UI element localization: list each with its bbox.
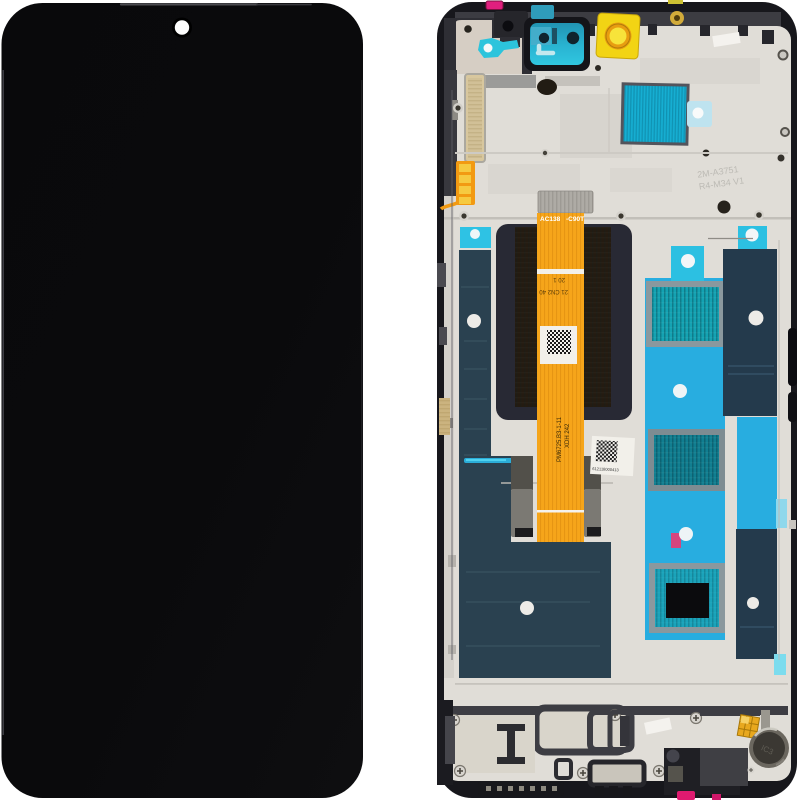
svg-text:XDH 242: XDH 242 [565,423,571,448]
svg-text:PM6725.B3-1-11: PM6725.B3-1-11 [557,416,563,462]
svg-text:20 1: 20 1 [553,276,565,282]
svg-text:21 CN2 40: 21 CN2 40 [539,288,568,294]
svg-text:AC138: AC138 [540,216,561,223]
svg-text:-C90T: -C90T [566,216,584,223]
